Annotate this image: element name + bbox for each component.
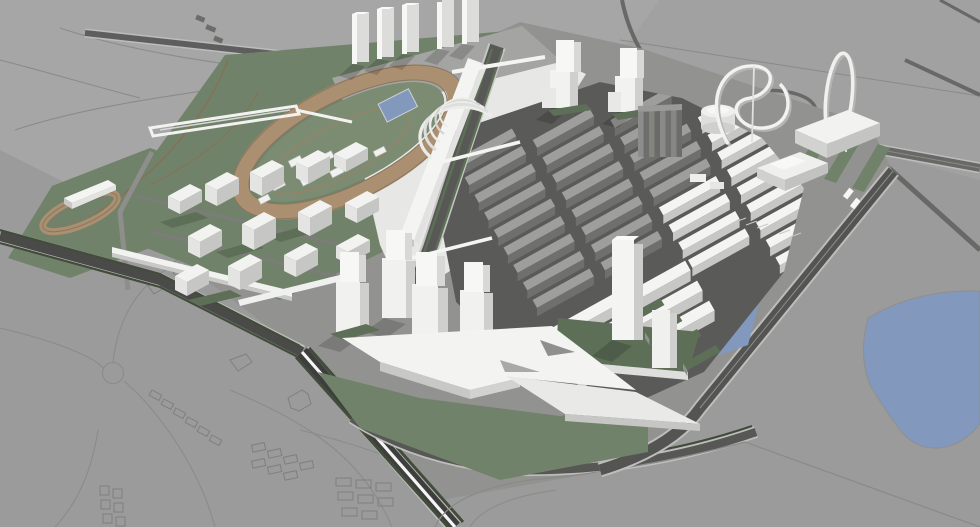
slab-tower — [402, 3, 419, 54]
stacked-tower — [336, 252, 369, 332]
ribbed-tower-cluster — [638, 104, 682, 157]
slab-tower — [437, 0, 454, 49]
render-canvas — [0, 0, 980, 527]
stacked-tower — [382, 230, 415, 318]
slab-tower — [462, 0, 479, 44]
slab-tower — [377, 7, 394, 59]
slab-tower — [352, 12, 369, 64]
masterplan-render — [0, 0, 980, 527]
